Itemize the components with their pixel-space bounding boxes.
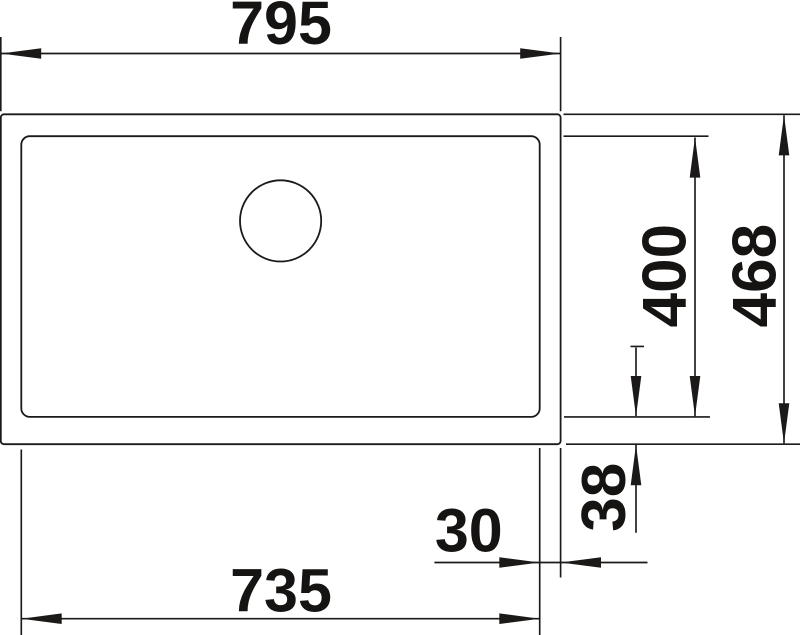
svg-text:468: 468 — [721, 224, 790, 327]
svg-text:400: 400 — [631, 224, 700, 327]
svg-text:30: 30 — [435, 497, 503, 565]
svg-text:735: 735 — [230, 557, 332, 625]
svg-text:795: 795 — [230, 0, 332, 57]
svg-text:38: 38 — [570, 463, 639, 532]
